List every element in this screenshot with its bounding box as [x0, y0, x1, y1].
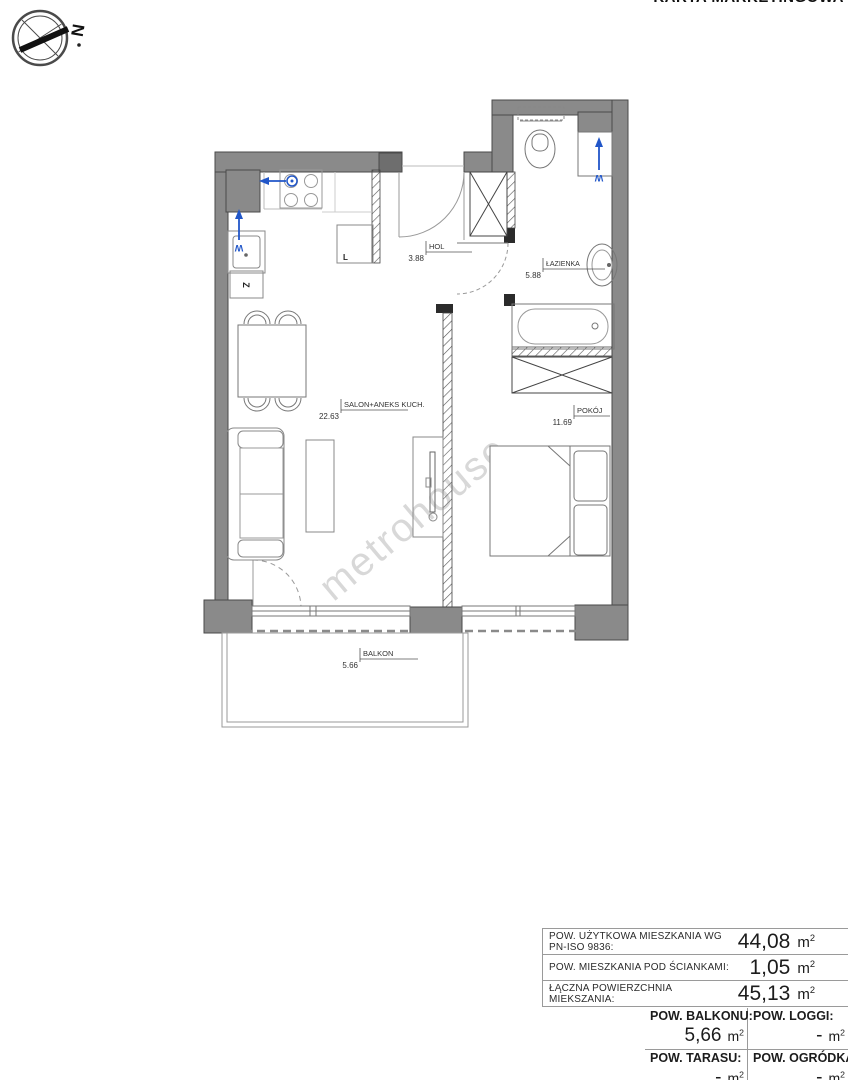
fridge: L: [337, 225, 373, 263]
grid-label: POW. TARASU:: [650, 1051, 744, 1065]
washbasin: [587, 244, 617, 286]
summary-row: ŁĄCZNA POWIERZCHNIA MIEKSZANIA: 45,13 m2: [543, 981, 848, 1007]
kitchen-gas-point: [259, 176, 297, 186]
grid-unit: m2: [728, 1070, 745, 1080]
room-name: SALON+ANEKS KUCH.: [344, 400, 425, 409]
room-area: 5.88: [525, 271, 541, 280]
summary-value: 44,08: [738, 931, 791, 953]
sofa: [226, 428, 284, 560]
summary-unit: m2: [797, 933, 815, 951]
grid-cell-ogrodka: POW. OGRÓDKA: -m2: [748, 1050, 848, 1080]
grid-cell-tarasu: POW. TARASU: -m2: [645, 1050, 748, 1080]
bathtub: [512, 304, 614, 349]
dining-table: [238, 311, 306, 411]
grid-cell-balkon: POW. BALKONU: 5,66m2: [645, 1008, 748, 1050]
kitchen-stove: [264, 170, 372, 212]
kitchen-water-label: W: [234, 243, 243, 253]
north-label: N: [67, 23, 88, 38]
summary-row: POW. UŻYTKOWA MIESZKANIA WG PN-ISO 9836:…: [543, 929, 848, 955]
compass: N: [13, 11, 88, 65]
room-name: POKÓJ: [577, 406, 603, 415]
balcony-door: [253, 560, 301, 608]
room-label-hol: HOL 3.88: [408, 241, 472, 263]
room-name: ŁAZIENKA: [546, 261, 580, 268]
compass-needle: [20, 29, 68, 50]
summary-label: ŁĄCZNA POWIERZCHNIA MIEKSZANIA:: [543, 983, 738, 1005]
toilet: [518, 107, 564, 168]
kitchen-drain-label: Z: [241, 282, 251, 288]
kitchen-corner-block: [226, 170, 260, 212]
wall-jambs: [436, 228, 515, 313]
summary-unit: m2: [797, 959, 815, 977]
floor-plan: N metrohouse: [0, 0, 848, 920]
marketing-card-page: KARTA MARKETINGOWA N metrohouse: [0, 0, 848, 1080]
bathroom-door: [457, 243, 508, 294]
grid-unit: m2: [829, 1028, 846, 1044]
summary-value: 45,13: [738, 983, 791, 1005]
grid-label: POW. BALKONU:: [650, 1009, 744, 1023]
summary-unit: m2: [797, 985, 815, 1003]
room-label-salon: SALON+ANEKS KUCH. 22.63: [319, 399, 425, 421]
grid-unit: m2: [829, 1070, 846, 1080]
arrow-up-icon: [595, 137, 603, 147]
room-area: 22.63: [319, 412, 340, 421]
bedroom-window: [462, 606, 575, 616]
grid-unit: m2: [728, 1028, 745, 1044]
room-area: 3.88: [408, 254, 424, 263]
bed: [490, 446, 610, 556]
grid-label: POW. OGRÓDKA:: [753, 1051, 845, 1065]
grid-value: -: [816, 1025, 822, 1046]
grid-cell-loggi: POW. LOGGI: -m2: [748, 1008, 848, 1050]
kitchen-sink: [228, 231, 265, 273]
room-area: 5.66: [342, 661, 358, 670]
room-label-balkon: BALKON 5.66: [342, 648, 418, 670]
summary-row: POW. MIESZKANIA POD ŚCIANKAMI: 1,05 m2: [543, 955, 848, 981]
room-label-pokoj: POKÓJ 11.69: [553, 405, 610, 427]
entrance-door: [399, 172, 464, 237]
balcony: [222, 633, 468, 727]
shaft: [470, 172, 507, 236]
grid-label: POW. LOGGI:: [753, 1009, 845, 1023]
grid-value: 5,66: [685, 1025, 722, 1046]
summary-table: POW. UŻYTKOWA MIESZKANIA WG PN-ISO 9836:…: [542, 928, 848, 1007]
summary-label: POW. MIESZKANIA POD ŚCIANKAMI:: [543, 962, 749, 973]
fridge-label: L: [343, 253, 348, 262]
room-area: 11.69: [553, 418, 573, 427]
room-name: BALKON: [363, 649, 393, 658]
watermark: metrohouse: [311, 427, 516, 609]
salon-window: [252, 606, 410, 616]
summary-value: 1,05: [749, 957, 790, 979]
kitchen-drain-box: Z: [230, 271, 263, 298]
washer-water-label: W: [594, 173, 603, 183]
grid-value: -: [715, 1067, 721, 1080]
room-label-lazienka: ŁAZIENKA 5.88: [525, 258, 605, 280]
summary-label: POW. UŻYTKOWA MIESZKANIA WG PN-ISO 9836:: [543, 931, 738, 953]
grid-value: -: [816, 1067, 822, 1080]
coffee-table: [306, 440, 334, 532]
wardrobe: [512, 357, 612, 393]
summary-grid: POW. BALKONU: 5,66m2 POW. LOGGI: -m2 POW…: [645, 1008, 848, 1080]
washing-machine: W: [578, 132, 612, 183]
room-name: HOL: [429, 242, 444, 251]
